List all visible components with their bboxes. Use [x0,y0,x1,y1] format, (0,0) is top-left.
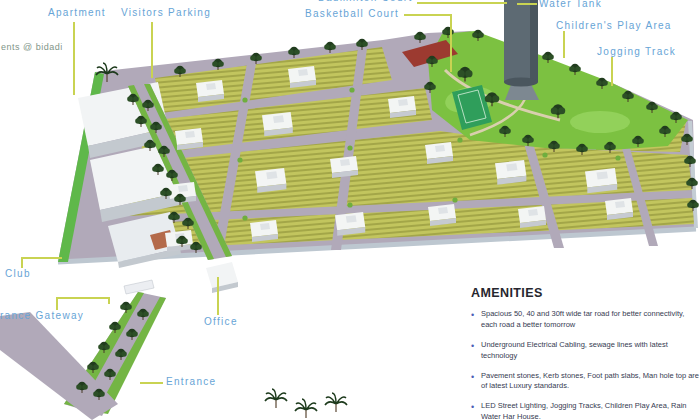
label-jogging-track: Jogging Track [597,47,676,57]
amenity-item: Pavement stones, Kerb stones, Foot path … [471,371,700,393]
leader-club-v [21,257,23,268]
leader-club-h [21,257,62,259]
leader-entrance-gateway-v1 [56,297,58,310]
label-badminton-court: Badminton Court [318,0,413,3]
leader-apartment [73,22,75,95]
leader-office [217,277,219,315]
leader-visitors-parking [151,22,153,78]
label-basketball-court: Basketball Court [305,9,399,19]
label-entrance: Entrance [166,377,216,387]
label-office: Office [204,317,238,327]
leader-water-tank [517,3,537,5]
amenities-panel: AMENITIES Spacious 50, 40 and 30ft wide … [471,286,700,420]
label-entrance-gateway: Entrance Gateway [0,311,84,321]
leader-basketball-court-h [404,14,452,16]
leader-jogging-track [611,57,613,86]
leader-childrens-play-area [563,31,565,58]
label-visitors-parking: Visitors Parking [121,8,211,18]
office-building [206,262,238,293]
amenity-item: LED Street Lighting, Jogging Tracks, Chi… [471,401,700,420]
leader-entrance-gateway-v2 [108,297,110,304]
label-childrens-play-area: Children's Play Area [556,21,672,31]
leader-entrance-gateway-h [56,297,110,299]
leader-basketball-court-v [450,14,452,72]
amenities-title: AMENITIES [471,286,700,300]
brand-text: ents @ bidadi [1,42,63,52]
gateway-structure [124,280,154,294]
label-club: Club [5,269,31,279]
leader-badminton-court [417,2,507,4]
amenities-list: Spacious 50, 40 and 30ft wide tar road f… [471,309,700,420]
leader-entrance [140,382,163,384]
amenity-item: Spacious 50, 40 and 30ft wide tar road f… [471,309,700,331]
site-plan-poster: Apartment Visitors Parking Badminton Cou… [0,0,700,420]
amenity-item: Underground Electrical Cabling, sewage l… [471,340,700,362]
label-apartment: Apartment [48,8,106,18]
label-water-tank: Water Tank [539,0,602,9]
